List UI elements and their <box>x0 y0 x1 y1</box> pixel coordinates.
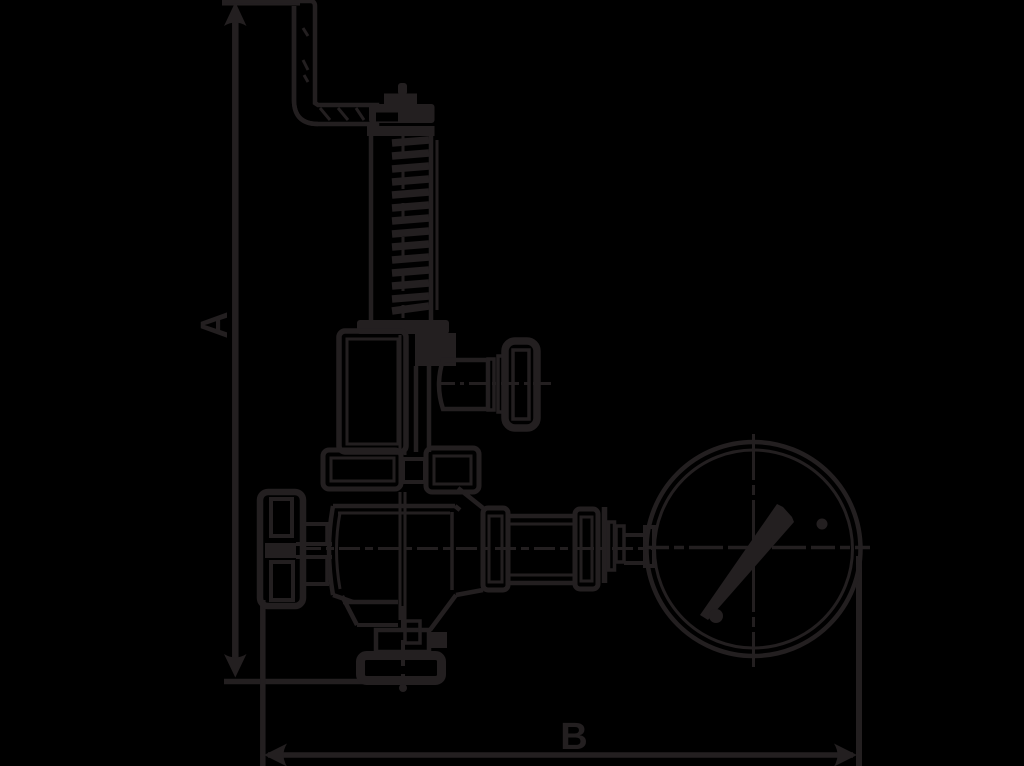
svg-text:B: B <box>560 716 587 758</box>
svg-text:A: A <box>194 311 236 338</box>
